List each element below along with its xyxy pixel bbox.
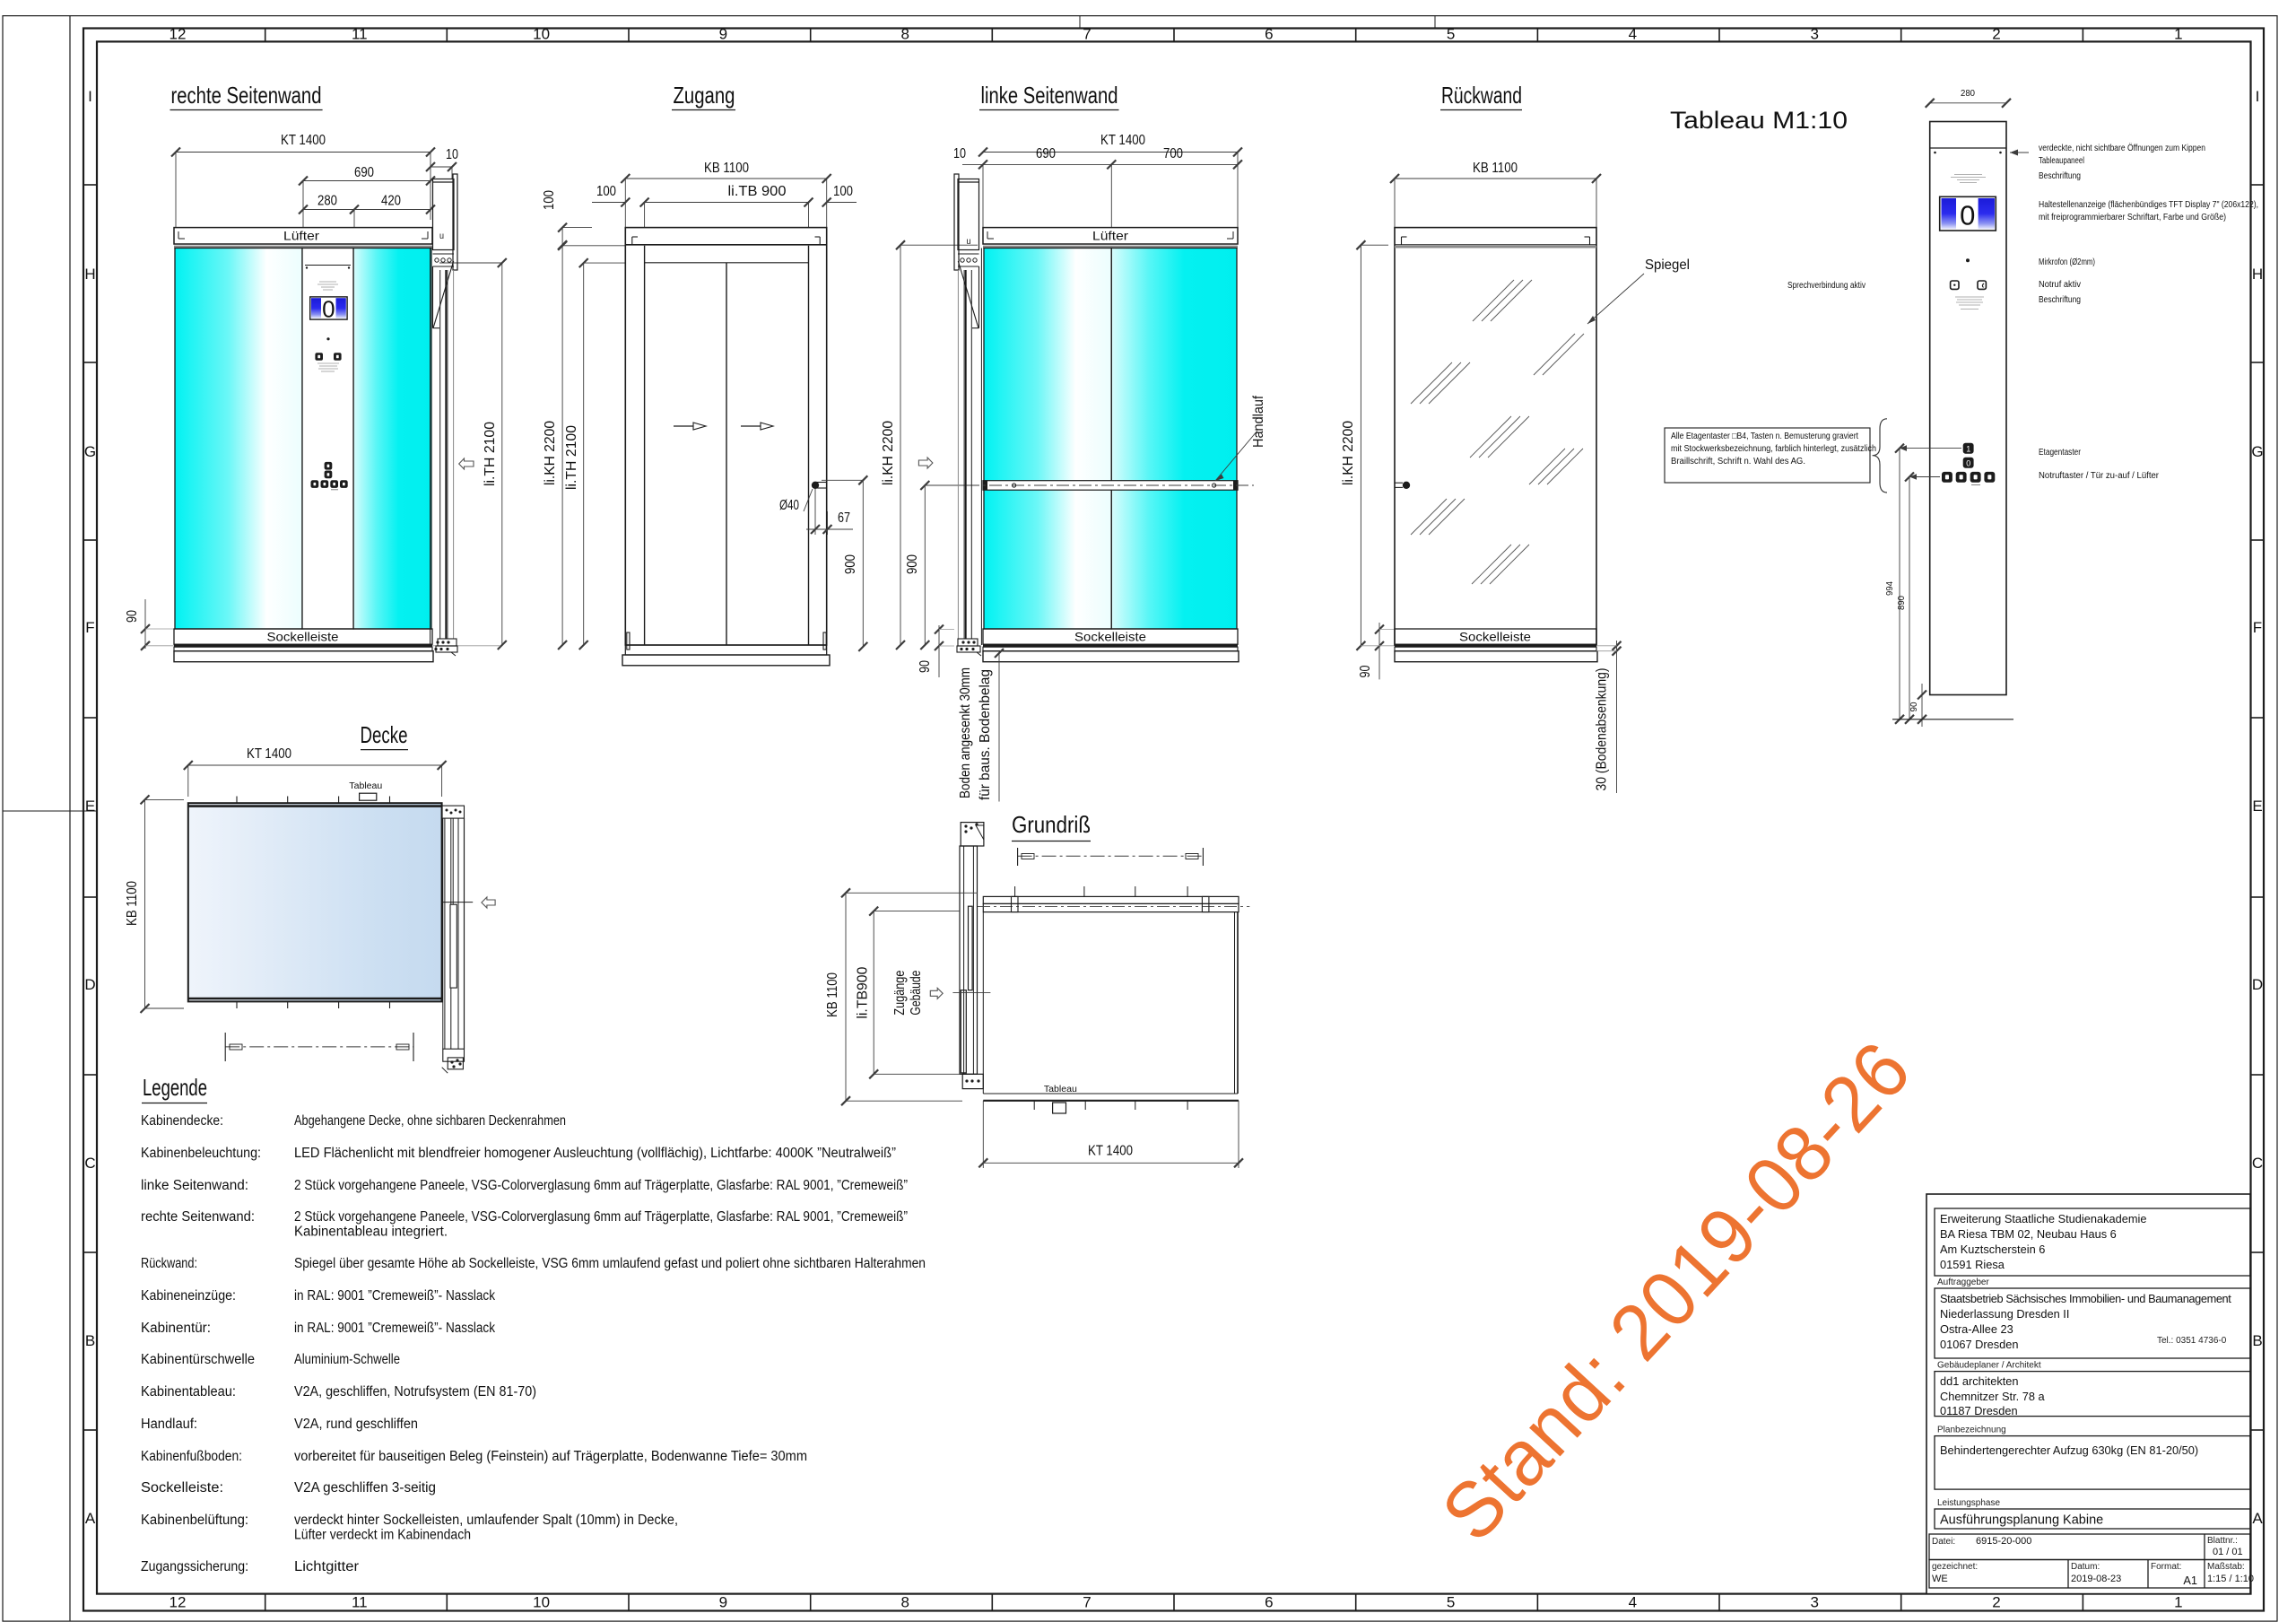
svg-text:Planbezeichnung: Planbezeichnung — [1937, 1426, 2006, 1435]
svg-text:Sockelleiste:: Sockelleiste: — [141, 1480, 223, 1496]
svg-text:01 / 01: 01 / 01 — [2213, 1547, 2243, 1557]
svg-text:E: E — [85, 798, 95, 815]
svg-text:mit freiprogrammierbarer Schri: mit freiprogrammierbarer Schriftart, Far… — [2039, 213, 2226, 222]
svg-text:D: D — [2252, 976, 2263, 993]
svg-text:Rückwand: Rückwand — [1441, 82, 1522, 109]
svg-text:Sockelleiste: Sockelleiste — [1074, 630, 1146, 644]
svg-text:280: 280 — [1961, 89, 1975, 99]
svg-text:KT 1400: KT 1400 — [281, 133, 326, 148]
svg-text:Ausführungsplanung Kabine: Ausführungsplanung Kabine — [1940, 1513, 2103, 1528]
svg-text:Ostra-Allee 23: Ostra-Allee 23 — [1940, 1322, 2013, 1336]
svg-text:KB 1100: KB 1100 — [1473, 161, 1518, 176]
svg-text:Lüfter: Lüfter — [283, 229, 319, 243]
svg-text:verdeckt hinter Sockelleisten,: verdeckt hinter Sockelleisten, umlaufend… — [294, 1513, 678, 1528]
svg-text:Blattnr.:: Blattnr.: — [2207, 1536, 2238, 1546]
svg-text:Sprechverbindung aktiv: Sprechverbindung aktiv — [1787, 281, 1865, 291]
svg-text:Gebäudeplaner / Architekt: Gebäudeplaner / Architekt — [1937, 1361, 2041, 1371]
svg-text:2019-08-23: 2019-08-23 — [2071, 1574, 2121, 1584]
svg-text:mit Stockwerksbezeichnung, far: mit Stockwerksbezeichnung, farblich hint… — [1671, 444, 1876, 454]
svg-text:Boden angesenkt 30mm: Boden angesenkt 30mm — [958, 667, 973, 798]
svg-text:01591 Riesa: 01591 Riesa — [1940, 1258, 2005, 1271]
svg-text:linke Seitenwand:: linke Seitenwand: — [141, 1178, 248, 1193]
svg-text:G: G — [84, 443, 96, 460]
svg-text:li.KH 2200: li.KH 2200 — [1341, 421, 1356, 485]
svg-text:67: 67 — [838, 510, 850, 526]
svg-text:Erweiterung Staatliche Studien: Erweiterung Staatliche Studienakademie — [1940, 1212, 2146, 1225]
svg-text:0: 0 — [322, 296, 335, 323]
svg-text:0: 0 — [1966, 459, 1970, 468]
svg-text:Handlauf:: Handlauf: — [141, 1417, 197, 1432]
svg-text:Zugangssicherung:: Zugangssicherung: — [141, 1559, 248, 1574]
svg-text:9: 9 — [719, 26, 727, 43]
svg-text:Format:: Format: — [2151, 1562, 2181, 1572]
svg-text:in RAL: 9001 ”Cremeweiß”- Nass: in RAL: 9001 ”Cremeweiß”- Nasslack — [294, 1321, 495, 1336]
svg-text:KB 1100: KB 1100 — [125, 881, 140, 926]
svg-text:G: G — [2251, 443, 2263, 460]
svg-text:Etagentaster: Etagentaster — [2039, 448, 2082, 458]
svg-text:7: 7 — [1083, 26, 1091, 43]
svg-text:Zugänge: Zugänge — [892, 971, 908, 1016]
svg-text:BA Riesa TBM 02, Neubau Haus 6: BA Riesa TBM 02, Neubau Haus 6 — [1940, 1227, 2117, 1241]
svg-text:0: 0 — [1960, 200, 1975, 231]
svg-text:3: 3 — [1810, 26, 1818, 43]
svg-text:A1: A1 — [2183, 1574, 2197, 1587]
svg-text:KB 1100: KB 1100 — [704, 161, 749, 176]
svg-text:8: 8 — [900, 26, 909, 43]
svg-text:Behindertengerechter Aufzug 6: Behindertengerechter Aufzug 630kg (EN 81… — [1940, 1443, 2198, 1457]
svg-text:F: F — [2253, 619, 2262, 636]
svg-text:LED Flächenlicht mit blendfrei: LED Flächenlicht mit blendfreier homogen… — [294, 1146, 896, 1161]
svg-text:Ø40: Ø40 — [779, 498, 799, 513]
svg-text:900: 900 — [905, 554, 920, 574]
svg-text:für baus. Bodenbelag: für baus. Bodenbelag — [978, 669, 993, 800]
svg-text:C: C — [2252, 1155, 2263, 1172]
svg-text:Kabinenfußboden:: Kabinenfußboden: — [141, 1449, 242, 1464]
svg-text:1: 1 — [2174, 26, 2182, 43]
svg-text:I: I — [2256, 88, 2260, 105]
svg-text:Legende: Legende — [143, 1074, 207, 1101]
svg-text:690: 690 — [1036, 146, 1056, 161]
svg-text:12: 12 — [170, 1594, 187, 1611]
svg-text:690: 690 — [354, 165, 374, 180]
svg-text:dd1 architekten: dd1 architekten — [1940, 1374, 2019, 1388]
svg-text:Decke: Decke — [361, 721, 408, 748]
svg-text:5: 5 — [1447, 26, 1455, 43]
svg-text:Leistungsphase: Leistungsphase — [1937, 1498, 2000, 1508]
svg-text:11: 11 — [352, 26, 368, 43]
svg-text:10: 10 — [533, 1594, 550, 1611]
svg-text:li.TH 2100: li.TH 2100 — [564, 425, 579, 490]
svg-text:90: 90 — [1909, 702, 1919, 711]
svg-text:D: D — [84, 976, 95, 993]
svg-text:in RAL: 9001 ”Cremeweiß”- Nass: in RAL: 9001 ”Cremeweiß”- Nasslack — [294, 1288, 495, 1304]
svg-text:C: C — [84, 1155, 95, 1172]
svg-text:3: 3 — [1810, 1594, 1818, 1611]
svg-text:Datei:: Datei: — [1932, 1537, 1955, 1547]
svg-text:100: 100 — [833, 184, 853, 199]
svg-text:10: 10 — [446, 147, 458, 162]
svg-text:1:15 / 1:10: 1:15 / 1:10 — [2207, 1574, 2254, 1584]
svg-text:Aluminium-Schwelle: Aluminium-Schwelle — [294, 1352, 400, 1367]
svg-text:900: 900 — [843, 554, 858, 574]
svg-text:Handlauf: Handlauf — [1251, 395, 1266, 448]
svg-text:2: 2 — [1992, 26, 2000, 43]
svg-text:90: 90 — [125, 610, 140, 623]
svg-text:Tableau: Tableau — [349, 781, 382, 791]
svg-text:Datum:: Datum: — [2071, 1562, 2100, 1572]
svg-text:Gebäude: Gebäude — [909, 971, 924, 1016]
svg-text:6: 6 — [1265, 1594, 1273, 1611]
svg-text:KT 1400: KT 1400 — [1100, 133, 1145, 148]
svg-text:890: 890 — [1897, 596, 1907, 610]
svg-text:11: 11 — [352, 1594, 368, 1611]
svg-text:WE: WE — [1932, 1574, 1948, 1584]
svg-text:5: 5 — [1447, 1594, 1455, 1611]
svg-text:Maßstab:: Maßstab: — [2207, 1562, 2245, 1572]
svg-text:Kabineneinzüge:: Kabineneinzüge: — [141, 1288, 236, 1304]
svg-text:li.KH 2200: li.KH 2200 — [881, 421, 896, 485]
svg-text:10: 10 — [533, 26, 550, 43]
svg-text:6915-20-000: 6915-20-000 — [1976, 1536, 2031, 1547]
svg-text:9: 9 — [719, 1594, 727, 1611]
svg-text:10: 10 — [953, 146, 966, 161]
svg-text:30 (Bodenabsenkung): 30 (Bodenabsenkung) — [1595, 668, 1610, 791]
svg-text:1: 1 — [2174, 1594, 2182, 1611]
svg-text:rechte Seitenwand: rechte Seitenwand — [171, 82, 322, 109]
svg-text:Abgehangene Decke, ohne sichba: Abgehangene Decke, ohne sichbaren Decken… — [294, 1113, 566, 1129]
svg-text:verdeckte, nicht sichtbare Öff: verdeckte, nicht sichtbare Öffnungen zum… — [2039, 143, 2205, 153]
svg-text:Staatsbetrieb Sächsisches Immo: Staatsbetrieb Sächsisches Immobilien- un… — [1940, 1292, 2231, 1305]
svg-text:Beschriftung: Beschriftung — [2039, 295, 2081, 305]
svg-text:Auftraggeber: Auftraggeber — [1937, 1278, 1989, 1287]
svg-text:Kabinentableau:: Kabinentableau: — [141, 1384, 236, 1400]
svg-text:01187 Dresden: 01187 Dresden — [1940, 1404, 2018, 1417]
svg-text:Tableaupaneel: Tableaupaneel — [2039, 156, 2084, 166]
svg-text:Kabinenbelüftung:: Kabinenbelüftung: — [141, 1513, 248, 1528]
svg-text:2 Stück vorgehangene Paneele,: 2 Stück vorgehangene Paneele, VSG-Colorv… — [294, 1178, 908, 1193]
svg-text:994: 994 — [1885, 581, 1895, 596]
svg-text:280: 280 — [317, 194, 337, 209]
svg-text:V2A, rund geschliffen: V2A, rund geschliffen — [294, 1417, 418, 1432]
svg-text:Alle Etagentaster □B4, Tasten: Alle Etagentaster □B4, Tasten n. Bemuste… — [1671, 432, 1858, 441]
svg-text:A: A — [85, 1510, 96, 1527]
svg-text:KT 1400: KT 1400 — [247, 746, 291, 762]
svg-text:Notruftaster / Tür zu-auf / Lü: Notruftaster / Tür zu-auf / Lüfter — [2039, 471, 2160, 481]
svg-text:Lüfter: Lüfter — [1092, 229, 1128, 243]
svg-text:4: 4 — [1629, 26, 1637, 43]
svg-text:700: 700 — [1163, 146, 1183, 161]
svg-text:Notruf aktiv: Notruf aktiv — [2039, 280, 2081, 290]
svg-text:E: E — [2252, 798, 2262, 815]
svg-text:100: 100 — [542, 190, 557, 210]
svg-text:Tableau: Tableau — [1044, 1085, 1077, 1094]
svg-text:u: u — [439, 231, 444, 241]
svg-text:Tableau M1:10: Tableau M1:10 — [1670, 107, 1848, 134]
svg-text:Chemnitzer Str. 78 a: Chemnitzer Str. 78 a — [1940, 1390, 2046, 1403]
svg-text:H: H — [84, 266, 95, 283]
svg-text:90: 90 — [1358, 665, 1373, 677]
svg-text:Sockelleiste: Sockelleiste — [1459, 630, 1531, 644]
svg-text:I: I — [88, 88, 92, 105]
svg-text:B: B — [85, 1332, 95, 1349]
svg-text:gezeichnet:: gezeichnet: — [1932, 1562, 1978, 1572]
svg-text:Tel.: 0351 4736-0: Tel.: 0351 4736-0 — [2157, 1336, 2227, 1346]
svg-text:vorbereitet für bauseitigen Be: vorbereitet für bauseitigen Beleg (Feins… — [294, 1449, 807, 1464]
svg-text:100: 100 — [596, 184, 616, 199]
svg-text:KT 1400: KT 1400 — [1088, 1144, 1133, 1159]
svg-text:Mirkrofon (Ø2mm): Mirkrofon (Ø2mm) — [2039, 257, 2095, 267]
svg-text:12: 12 — [170, 26, 187, 43]
svg-text:4: 4 — [1629, 1594, 1637, 1611]
svg-text:B: B — [2252, 1332, 2262, 1349]
svg-text:V2A, geschliffen, Notrufsystem: V2A, geschliffen, Notrufsystem (EN 81-70… — [294, 1384, 536, 1400]
svg-text:Kabinenbeleuchtung:: Kabinenbeleuchtung: — [141, 1146, 261, 1161]
svg-text:Kabinentürschwelle: Kabinentürschwelle — [141, 1352, 255, 1367]
svg-text:li.KH 2200: li.KH 2200 — [543, 421, 558, 485]
svg-text:V2A geschliffen 3-seitig: V2A geschliffen 3-seitig — [294, 1480, 436, 1496]
svg-text:Niederlassung Dresden II: Niederlassung Dresden II — [1940, 1307, 2069, 1321]
svg-text:F: F — [85, 619, 94, 636]
svg-text:2: 2 — [1992, 1594, 2000, 1611]
svg-text:Spiegel: Spiegel — [1645, 257, 1690, 273]
svg-text:Braillschrift, Schrift n. Wahl: Braillschrift, Schrift n. Wahl des AG. — [1671, 457, 1805, 467]
svg-text:Lichtgitter: Lichtgitter — [294, 1559, 359, 1574]
svg-text:Kabinentür:: Kabinentür: — [141, 1321, 211, 1336]
svg-text:linke Seitenwand: linke Seitenwand — [981, 82, 1118, 109]
svg-text:1: 1 — [1966, 445, 1970, 454]
svg-text:Am Kuztscherstein 6: Am Kuztscherstein 6 — [1940, 1243, 2045, 1256]
svg-text:li.TH 2100: li.TH 2100 — [483, 422, 498, 486]
svg-text:Rückwand:: Rückwand: — [141, 1256, 197, 1271]
svg-text:A: A — [2252, 1510, 2263, 1527]
svg-text:Kabinendecke:: Kabinendecke: — [141, 1113, 223, 1129]
svg-text:Grundriß: Grundriß — [1012, 811, 1091, 838]
svg-text:rechte Seitenwand:: rechte Seitenwand: — [141, 1209, 255, 1225]
svg-text:Haltestellenanzeige (flächenbü: Haltestellenanzeige (flächenbündiges TFT… — [2039, 200, 2258, 210]
svg-text:u: u — [967, 237, 971, 247]
svg-text:Spiegel über gesamte Höhe ab S: Spiegel über gesamte Höhe ab Sockelleist… — [294, 1256, 926, 1271]
svg-text:01067 Dresden: 01067 Dresden — [1940, 1338, 2019, 1351]
svg-text:7: 7 — [1083, 1594, 1091, 1611]
svg-text:8: 8 — [900, 1594, 909, 1611]
svg-text:Kabinentableau integriert.: Kabinentableau integriert. — [294, 1225, 448, 1240]
svg-text:2 Stück vorgehangene Paneele,: 2 Stück vorgehangene Paneele, VSG-Colorv… — [294, 1209, 908, 1225]
svg-text:Zugang: Zugang — [674, 82, 735, 109]
svg-text:90: 90 — [918, 660, 933, 673]
svg-text:Sockelleiste: Sockelleiste — [267, 630, 339, 644]
svg-text:6: 6 — [1265, 26, 1273, 43]
svg-text:li.TB 900: li.TB 900 — [728, 184, 787, 199]
svg-text:Lüfter verdeckt im Kabinendach: Lüfter verdeckt im Kabinendach — [294, 1528, 471, 1543]
svg-text:KB 1100: KB 1100 — [825, 972, 840, 1017]
svg-text:li.TB900: li.TB900 — [856, 967, 871, 1019]
svg-text:H: H — [2252, 266, 2263, 283]
svg-text:420: 420 — [381, 194, 401, 209]
svg-text:Beschriftung: Beschriftung — [2039, 171, 2081, 181]
